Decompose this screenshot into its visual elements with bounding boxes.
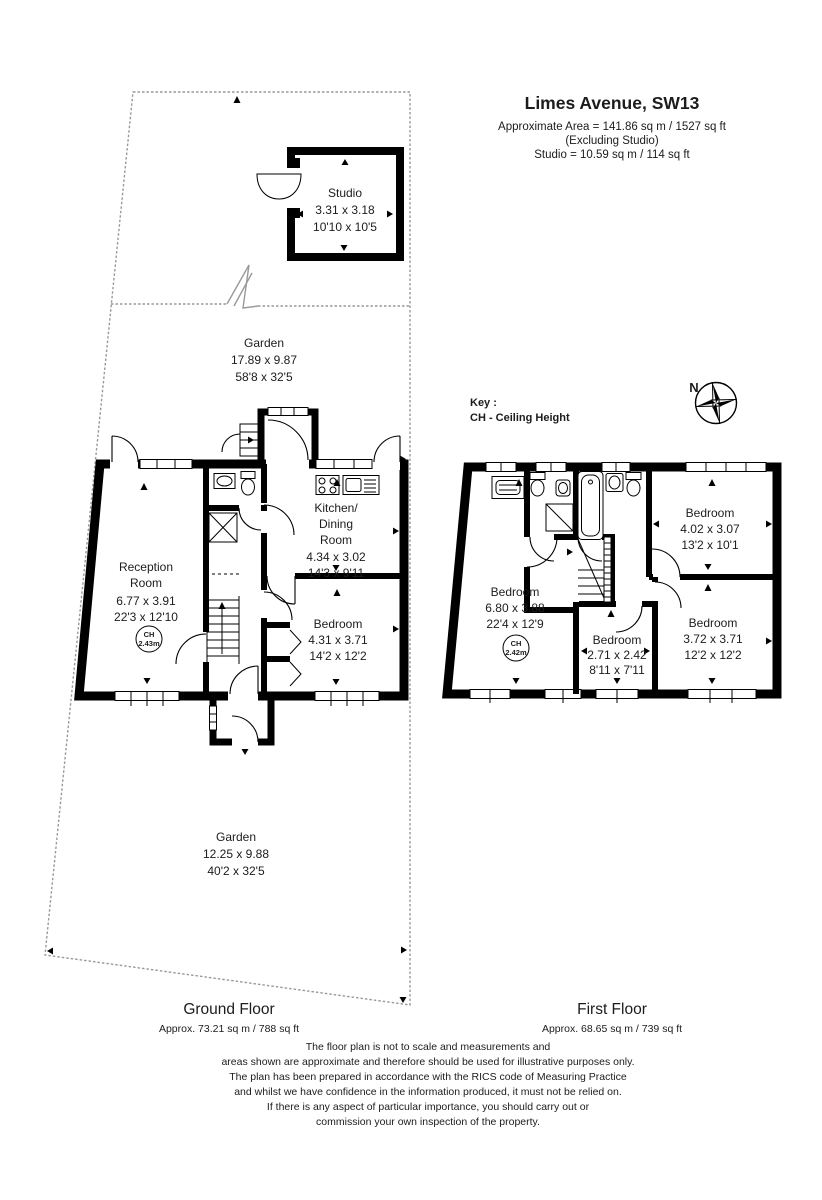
key-label: Key : <box>470 397 497 409</box>
compass-rose: N <box>689 380 736 424</box>
toilet <box>626 473 641 480</box>
garden-top-dims-ft: 58'8 x 32'5 <box>235 370 293 384</box>
bedroom-main-ch-value: 2.42m <box>505 648 527 657</box>
ground-floor-area: Approx. 73.21 sq m / 788 sq ft <box>159 1023 299 1035</box>
reception-dims-ft: 22'3 x 12'10 <box>114 610 178 624</box>
disclaimer-line-2: areas shown are approximate and therefor… <box>221 1056 634 1068</box>
toilet <box>241 472 255 479</box>
bedroom-br-dims-ft: 12'2 x 12'2 <box>684 648 742 662</box>
floorplan-svg: Studio 3.31 x 3.18 10'10 x 10'5 Garden 1… <box>0 0 822 1200</box>
bedroom-main-ch-label: CH <box>511 639 522 648</box>
disclaimer-line-4: and whilst we have confidence in the inf… <box>234 1086 622 1098</box>
bedroom-main-name: Bedroom <box>491 585 540 599</box>
studio-area: Studio = 10.59 sq m / 114 sq ft <box>534 149 690 161</box>
key-ceiling-height: CH - Ceiling Height <box>470 412 570 424</box>
first-bedroom-main-label: Bedroom 6.80 x 3.88 22'4 x 12'9 CH 2.42m <box>485 585 545 661</box>
bedroom-mid-dims-m: 2.71 x 2.42 <box>587 648 647 662</box>
first-floor-caption: First Floor Approx. 68.65 sq m / 739 sq … <box>542 1001 682 1035</box>
title-block: Limes Avenue, SW13 Approximate Area = 14… <box>498 93 727 161</box>
kitchen-name-3: Room <box>320 533 352 547</box>
ground-floor-caption: Ground Floor Approx. 73.21 sq m / 788 sq… <box>159 1001 299 1035</box>
excluding-studio: (Excluding Studio) <box>565 135 658 147</box>
ground-bedroom-label: Bedroom 4.31 x 3.71 14'2 x 12'2 <box>308 617 368 663</box>
ground-bedroom-dims-m: 4.31 x 3.71 <box>308 633 368 647</box>
garden-bottom-name: Garden <box>216 830 256 844</box>
studio-dims-ft: 10'10 x 10'5 <box>313 220 377 234</box>
reception-name-2: Room <box>130 576 162 590</box>
bedroom-mid-dims-ft: 8'11 x 7'11 <box>589 663 645 677</box>
disclaimer-line-5: If there is any aspect of particular imp… <box>267 1101 590 1113</box>
studio-name: Studio <box>328 186 362 200</box>
first-bedroom-middle-label: Bedroom 2.71 x 2.42 8'11 x 7'11 <box>587 633 647 677</box>
garden-bottom-dims-m: 12.25 x 9.88 <box>203 847 269 861</box>
first-floor-staircase <box>578 537 611 602</box>
garden-top-dims-m: 17.89 x 9.87 <box>231 353 297 367</box>
kitchen-name-2: Dining <box>319 517 353 531</box>
first-bedroom-top-right-label: Bedroom 4.02 x 3.07 13'2 x 10'1 <box>680 506 740 552</box>
studio-door-jamb <box>287 208 300 218</box>
bedroom-mid-name: Bedroom <box>593 633 642 647</box>
bedroom-main-dims-m: 6.80 x 3.88 <box>485 601 545 615</box>
first-bedroom-bottom-right-label: Bedroom 3.72 x 3.71 12'2 x 12'2 <box>683 616 743 662</box>
disclaimer-line-6: commission your own inspection of the pr… <box>316 1116 540 1128</box>
bedroom-tr-dims-ft: 13'2 x 10'1 <box>681 538 739 552</box>
bedroom-br-name: Bedroom <box>689 616 738 630</box>
reception-ch-value: 2.43m <box>138 639 160 648</box>
bedroom-br-dims-m: 3.72 x 3.71 <box>683 632 743 646</box>
kitchen-dims-m: 4.34 x 3.02 <box>306 550 366 564</box>
studio-dims-m: 3.31 x 3.18 <box>315 203 375 217</box>
bedroom-tr-dims-m: 4.02 x 3.07 <box>680 522 740 536</box>
kitchen-name-1: Kitchen/ <box>314 501 358 515</box>
reception-name-1: Reception <box>119 560 173 574</box>
approximate-area: Approximate Area = 141.86 sq m / 1527 sq… <box>498 121 727 133</box>
ground-kitchen-fixtures <box>316 476 379 495</box>
property-address: Limes Avenue, SW13 <box>525 93 700 113</box>
ground-bedroom-dims-ft: 14'2 x 12'2 <box>309 649 367 663</box>
first-floor-fixtures <box>492 472 641 540</box>
floorplan-page: Studio 3.31 x 3.18 10'10 x 10'5 Garden 1… <box>0 0 822 1200</box>
bedroom-main-dims-ft: 22'4 x 12'9 <box>486 617 544 631</box>
studio-door-jamb <box>287 158 300 168</box>
compass-north: N <box>689 380 698 395</box>
reception-ch-label: CH <box>144 630 155 639</box>
bedroom-tr-name: Bedroom <box>686 506 735 520</box>
garden-top-name: Garden <box>244 336 284 350</box>
key-block: Key : CH - Ceiling Height <box>470 397 570 424</box>
disclaimer-line-1: The floor plan is not to scale and measu… <box>306 1041 551 1053</box>
first-floor-area: Approx. 68.65 sq m / 739 sq ft <box>542 1023 682 1035</box>
ground-bedroom-name: Bedroom <box>314 617 363 631</box>
disclaimer-line-3: The plan has been prepared in accordance… <box>229 1071 627 1083</box>
reception-dims-m: 6.77 x 3.91 <box>116 594 176 608</box>
kitchen-dims-ft: 14'3 x 9'11 <box>308 566 365 580</box>
first-floor-plan: Bedroom 6.80 x 3.88 22'4 x 12'9 CH 2.42m… <box>447 463 777 704</box>
ground-floor-label: Ground Floor <box>183 1001 274 1018</box>
toilet <box>530 473 545 480</box>
first-floor-label: First Floor <box>577 1001 647 1018</box>
garden-bottom-dims-ft: 40'2 x 32'5 <box>207 864 265 878</box>
disclaimer-block: The floor plan is not to scale and measu… <box>221 1041 634 1128</box>
